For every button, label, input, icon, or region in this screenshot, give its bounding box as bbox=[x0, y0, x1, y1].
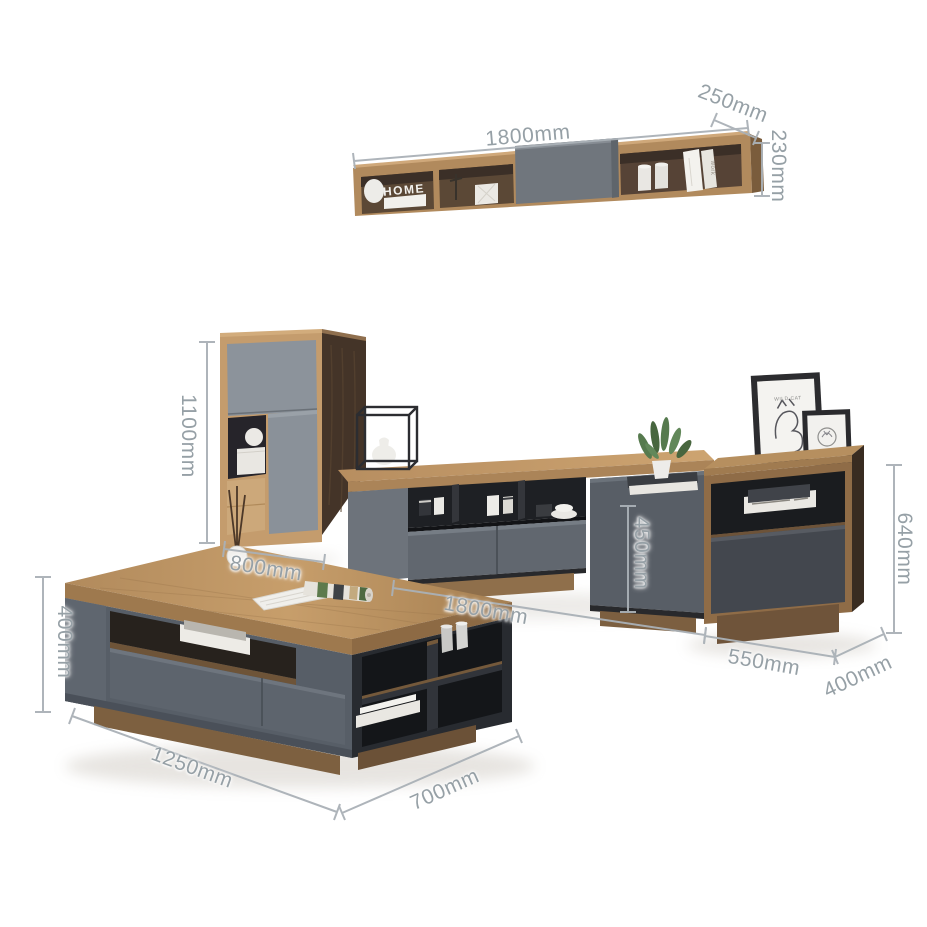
product-dimension-image: 1800mm 250mm 230mm 1100mm 800mm 1800mm 4… bbox=[0, 0, 927, 927]
dim-tall-cabinet-height: 1100mm bbox=[176, 394, 200, 478]
metal-cube-decor bbox=[357, 407, 417, 469]
dim-side-cabinet-height: 640mm bbox=[892, 512, 916, 585]
dim-wall-shelf-height: 230mm bbox=[766, 129, 790, 202]
book-spine-text: work bbox=[709, 161, 715, 176]
dim-coffee-table-height: 400mm bbox=[52, 605, 76, 678]
dim-tv-stand-height: 450mm bbox=[629, 516, 653, 589]
side-cabinet bbox=[704, 372, 864, 644]
